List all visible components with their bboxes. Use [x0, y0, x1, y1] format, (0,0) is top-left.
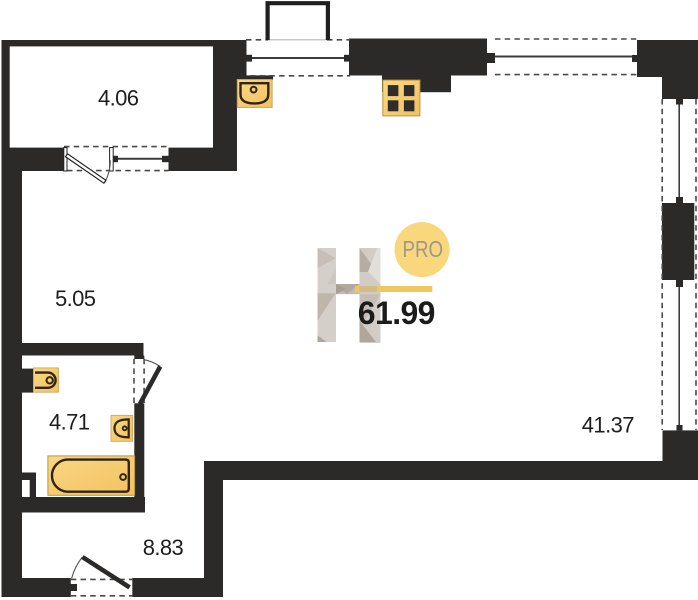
svg-text:4.71: 4.71	[49, 409, 90, 434]
svg-text:61.99: 61.99	[358, 295, 435, 331]
svg-text:8.83: 8.83	[143, 535, 184, 560]
svg-text:5.05: 5.05	[55, 286, 96, 311]
svg-text:PRO: PRO	[403, 236, 444, 262]
svg-text:41.37: 41.37	[582, 412, 634, 437]
svg-text:4.06: 4.06	[98, 86, 139, 111]
